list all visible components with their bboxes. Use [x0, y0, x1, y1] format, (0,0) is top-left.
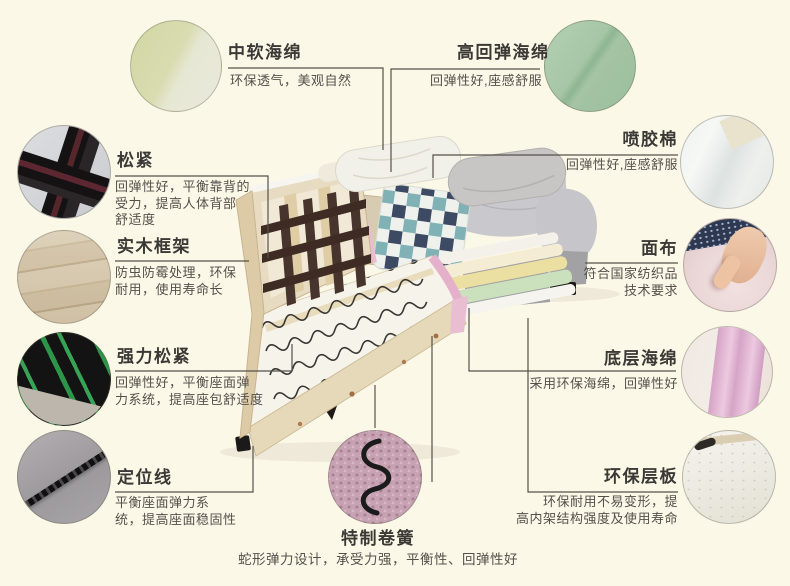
- callout-title: 环保层板: [516, 467, 678, 486]
- callout-title: 定位线: [117, 468, 237, 487]
- photo-cover-fabric: [683, 218, 777, 312]
- callout-bottom-foam: 底层海绵 采用环保海绵，回弹性好: [529, 349, 678, 393]
- floor-background: [17, 383, 111, 426]
- callout-strong-webbing: 强力松紧 回弹性好，平衡座面弹 力系统，提高座包舒适度: [117, 347, 264, 408]
- photo-bottom-foam: [681, 326, 773, 418]
- callout-title: 特制卷簧: [228, 529, 528, 548]
- callout-title: 强力松紧: [117, 347, 264, 366]
- callout-desc: 蛇形弹力设计，承受力强，平衡性、回弹性好: [228, 552, 528, 569]
- sofa-foot: [235, 435, 251, 452]
- callout-title: 松紧: [117, 151, 250, 170]
- callout-spray-bonded-cotton: 喷胶棉 回弹性好,座感舒服: [566, 130, 678, 174]
- callout-solid-wood-frame: 实木框架 防虫防霉处理，环保 耐用，使用寿命长: [117, 237, 237, 298]
- callout-cover-fabric: 面布 符合国家纺织品 技术要求: [583, 239, 678, 299]
- photo-strong-webbing: [17, 332, 111, 426]
- callout-desc: 回弹性好,座感舒服: [430, 73, 550, 90]
- serpentine-spring-icon: [329, 431, 422, 524]
- photo-elastic-webbing: [17, 125, 111, 219]
- callout-desc-line: 受力，提高人体背部: [115, 196, 250, 213]
- callout-title: 底层海绵: [529, 349, 678, 368]
- photo-eco-board: [682, 430, 776, 524]
- callout-desc-line: 统，提高座面稳固性: [115, 512, 237, 529]
- callout-desc-line: 环保耐用不易变形，提: [516, 494, 678, 511]
- callout-title: 面布: [583, 239, 678, 258]
- callout-desc: 环保透气，美观自然: [230, 73, 352, 90]
- callout-desc-line: 平衡座面弹力系: [115, 495, 237, 512]
- callout-title: 高回弹海绵: [457, 43, 550, 62]
- photo-solid-wood: [17, 230, 111, 324]
- callout-desc-line: 耐用，使用寿命长: [115, 282, 237, 299]
- callout-desc: 回弹性好,座感舒服: [566, 157, 678, 174]
- photo-high-resilience-foam: [544, 20, 636, 112]
- callout-desc-line: 回弹性好，平衡靠背的: [115, 179, 250, 196]
- leader-eco-board: [528, 318, 678, 492]
- photo-soft-foam: [130, 20, 222, 112]
- callout-title: 中软海绵: [228, 43, 352, 62]
- callout-title: 喷胶棉: [566, 130, 678, 149]
- callout-desc-line: 防虫防霉处理，环保: [115, 265, 237, 282]
- callout-elastic-webbing: 松紧 回弹性好，平衡靠背的 受力，提高人体背部 舒适度: [117, 151, 250, 229]
- callout-desc-line: 回弹性好，平衡座面弹: [115, 375, 264, 392]
- callout-desc-line: 技术要求: [583, 283, 678, 300]
- callout-title: 实木框架: [117, 237, 237, 256]
- callout-special-coil-spring: 特制卷簧 蛇形弹力设计，承受力强，平衡性、回弹性好: [228, 529, 528, 569]
- callout-positioning-line: 定位线 平衡座面弹力系 统，提高座面稳固性: [117, 468, 237, 528]
- stitch-chain-line: [17, 438, 111, 519]
- white-batting-roll: [332, 133, 463, 194]
- background-corner: [720, 115, 774, 150]
- callout-desc-line: 符合国家纺织品: [583, 266, 678, 283]
- photo-special-coil-spring: [328, 430, 422, 524]
- callout-eco-board: 环保层板 环保耐用不易变形，提 高内架结构强度及使用寿命: [516, 467, 678, 527]
- callout-desc: 采用环保海绵，回弹性好: [529, 376, 678, 393]
- sofa-construction-infographic: 中软海绵 环保透气，美观自然 高回弹海绵 回弹性好,座感舒服 松紧 回弹性好，平…: [0, 0, 790, 586]
- callout-desc-line: 高内架结构强度及使用寿命: [516, 511, 678, 528]
- callout-desc-line: 舒适度: [115, 212, 250, 229]
- callout-high-resilience-foam: 高回弹海绵 回弹性好,座感舒服: [430, 43, 550, 90]
- pink-trim-corner: [450, 296, 468, 334]
- photo-spray-bonded-cotton: [680, 115, 774, 209]
- callout-desc-line: 力系统，提高座包舒适度: [115, 392, 264, 409]
- photo-positioning-line: [17, 430, 111, 524]
- callout-soft-foam: 中软海绵 环保透气，美观自然: [228, 43, 352, 90]
